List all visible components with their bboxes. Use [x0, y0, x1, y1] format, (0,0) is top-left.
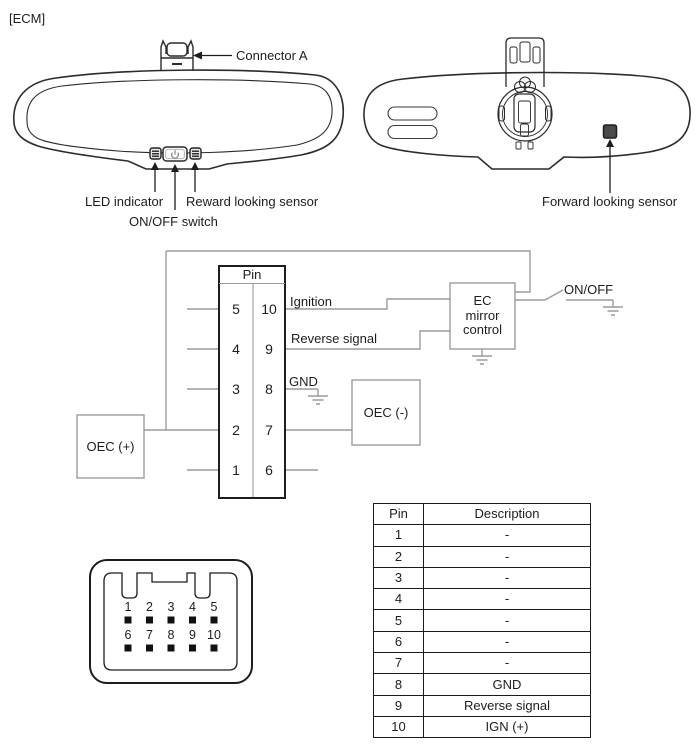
- connector-pinout-view: [90, 560, 252, 683]
- conn-num-10: 10: [207, 629, 221, 642]
- conn-num-2: 2: [143, 601, 157, 614]
- cell-pin: 4: [374, 589, 424, 610]
- led-indicator-arrow: [151, 162, 159, 192]
- conn-num-5: 5: [207, 601, 221, 614]
- reverse-signal-label: Reverse signal: [291, 331, 377, 346]
- cell-pin: 2: [374, 546, 424, 567]
- front-mirror-mount: [161, 41, 193, 71]
- ecm-diagram-page: [ECM] Connector A LED indicator ON/OFF s…: [0, 0, 700, 753]
- onoff-switch-arrow: [171, 164, 179, 210]
- pin-10: 10: [253, 301, 285, 317]
- rearward-sensor-arrow: [191, 162, 199, 192]
- cell-desc: -: [424, 589, 591, 610]
- gnd-label: GND: [289, 374, 318, 389]
- cell-desc: -: [424, 610, 591, 631]
- conn-num-7: 7: [143, 629, 157, 642]
- rearward-sensor-icon: [190, 148, 201, 159]
- cell-desc: -: [424, 567, 591, 588]
- pin-description-table: Pin Description 1- 2- 3- 4- 5- 6- 7- 8GN…: [373, 503, 591, 738]
- cell-pin: 3: [374, 567, 424, 588]
- cell-desc: -: [424, 546, 591, 567]
- conn-num-3: 3: [164, 601, 178, 614]
- forward-sensor-icon: [604, 125, 617, 138]
- pin-8: 8: [253, 381, 285, 397]
- ground-symbol-gnd: [308, 389, 328, 404]
- table-header-desc: Description: [424, 504, 591, 525]
- rear-mirror-slots: [388, 107, 437, 139]
- front-mirror-glass-edge: [27, 80, 332, 153]
- conn-num-6: 6: [121, 629, 135, 642]
- table-row: 10IGN (+): [374, 716, 591, 737]
- cell-desc: -: [424, 653, 591, 674]
- pin-9: 9: [253, 341, 285, 357]
- table-row: 6-: [374, 631, 591, 652]
- table-row: 7-: [374, 653, 591, 674]
- pin-3: 3: [219, 381, 253, 397]
- pin-5: 5: [219, 301, 253, 317]
- cell-desc: -: [424, 631, 591, 652]
- ecm-tag: [ECM]: [9, 11, 45, 26]
- table-row: 2-: [374, 546, 591, 567]
- cell-pin: 10: [374, 716, 424, 737]
- conn-num-9: 9: [186, 629, 200, 642]
- pin-7: 7: [253, 422, 285, 438]
- table-header-row: Pin Description: [374, 504, 591, 525]
- led-indicator-label: LED indicator: [85, 194, 163, 209]
- cell-pin: 8: [374, 674, 424, 695]
- cell-desc: IGN (+): [424, 716, 591, 737]
- table-row: 4-: [374, 589, 591, 610]
- conn-num-8: 8: [164, 629, 178, 642]
- table-row: 9Reverse signal: [374, 695, 591, 716]
- ec-label-line3: control: [450, 323, 515, 338]
- front-mirror-callout-arrows: [151, 52, 232, 211]
- pin-6: 6: [253, 462, 285, 478]
- pin-2: 2: [219, 422, 253, 438]
- onoff-schematic-label: ON/OFF: [564, 282, 613, 297]
- wiring-schematic: [77, 251, 623, 478]
- cell-desc: -: [424, 525, 591, 546]
- connector-a-label: Connector A: [236, 48, 308, 63]
- cell-pin: 1: [374, 525, 424, 546]
- cell-desc: GND: [424, 674, 591, 695]
- pin-1: 1: [219, 462, 253, 478]
- led-indicator-icon: [150, 148, 161, 159]
- rear-mirror-mount: [498, 38, 552, 149]
- cell-pin: 5: [374, 610, 424, 631]
- onoff-switch-label: ON/OFF switch: [129, 214, 218, 229]
- ignition-label: Ignition: [290, 294, 332, 309]
- cell-desc: Reverse signal: [424, 695, 591, 716]
- oec-minus-label: OEC (-): [352, 405, 420, 420]
- ground-symbol-onoff: [603, 300, 623, 315]
- rearward-sensor-label: Reward looking sensor: [186, 194, 318, 209]
- ground-symbol-ec: [472, 349, 492, 364]
- oec-plus-label: OEC (+): [77, 439, 144, 454]
- onoff-switch-button: [163, 147, 187, 161]
- table-row: 5-: [374, 610, 591, 631]
- cell-pin: 6: [374, 631, 424, 652]
- table-row: 1-: [374, 525, 591, 546]
- forward-sensor-arrow: [606, 139, 614, 193]
- diagram-artwork: [0, 0, 700, 753]
- pin-4: 4: [219, 341, 253, 357]
- cell-pin: 7: [374, 653, 424, 674]
- table-row: 3-: [374, 567, 591, 588]
- cell-pin: 9: [374, 695, 424, 716]
- ec-label-line1: EC: [450, 294, 515, 309]
- ec-mirror-control-label: EC mirror control: [450, 294, 515, 338]
- rear-mirror: [364, 38, 690, 169]
- conn-num-1: 1: [121, 601, 135, 614]
- connector-pins-row2: [125, 645, 218, 652]
- forward-sensor-label: Forward looking sensor: [542, 194, 677, 209]
- connector-a-arrow: [193, 52, 232, 60]
- conn-num-4: 4: [186, 601, 200, 614]
- connector-pins-row1: [125, 617, 218, 624]
- pin-box-header: Pin: [219, 267, 285, 282]
- table-row: 8GND: [374, 674, 591, 695]
- ec-label-line2: mirror: [450, 309, 515, 324]
- table-header-pin: Pin: [374, 504, 424, 525]
